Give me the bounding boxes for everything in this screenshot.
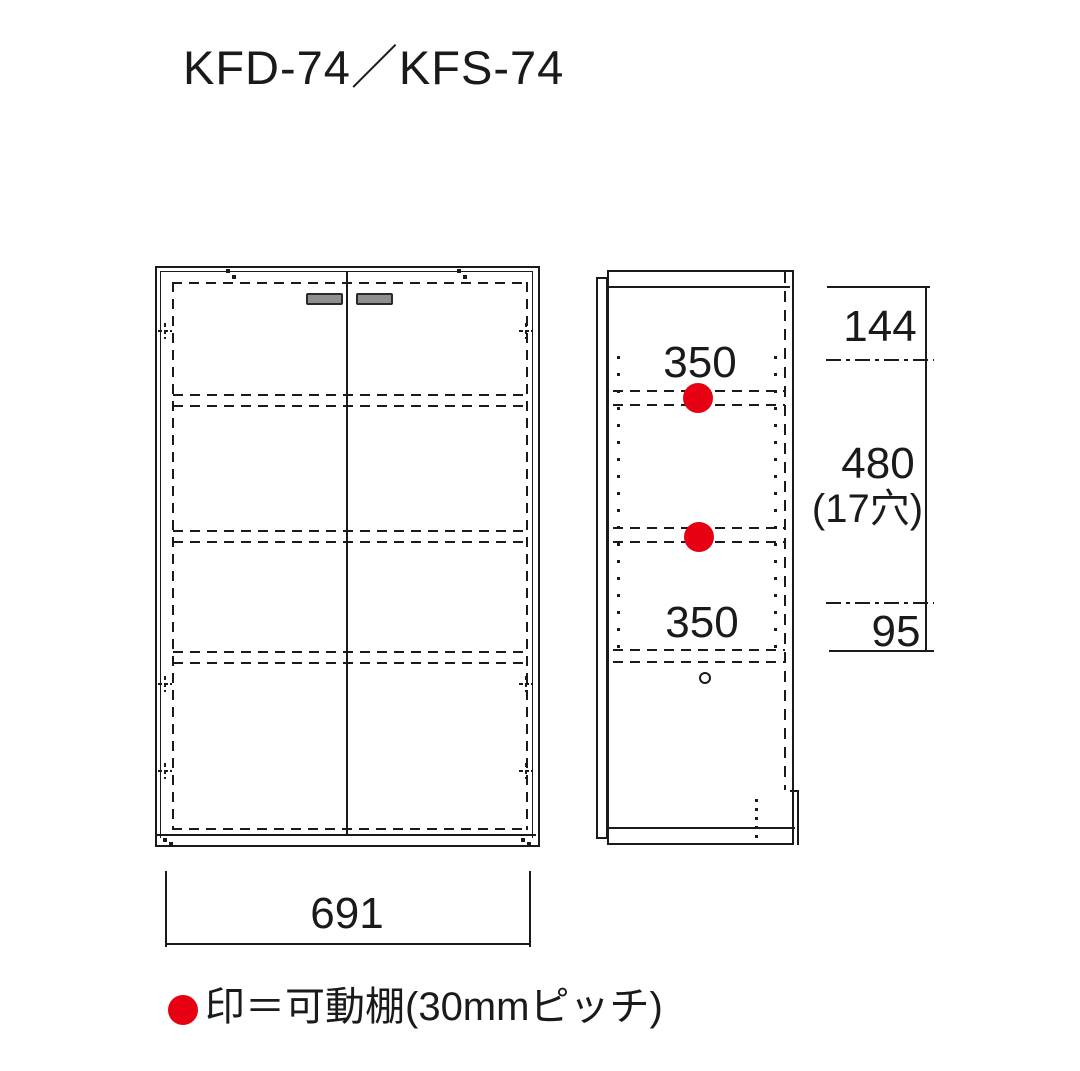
adjustable-shelf-dot [683, 383, 713, 413]
shelf-line [173, 651, 527, 653]
hinge-mark [519, 323, 533, 339]
dowel-dot [457, 269, 461, 273]
shelf-line [173, 530, 527, 532]
dim-dashdot-line [826, 359, 934, 361]
left-door-handle [306, 293, 343, 305]
hinge-mark [158, 323, 172, 339]
legend-label: 印＝可動棚(30mmピッチ) [205, 987, 663, 1027]
legend-adjustable-shelf-dot-icon [168, 995, 198, 1025]
dowel-dot [226, 269, 230, 273]
hole-count-label: (17穴) [795, 489, 940, 529]
cam-hole [699, 672, 711, 684]
shelf-line [173, 405, 527, 407]
top-height-label: 144 [832, 305, 928, 349]
lower-depth-label: 350 [627, 601, 777, 645]
carcass-hidden-outline [172, 282, 528, 830]
hinge-mark [158, 676, 172, 692]
hinge-mark [519, 676, 533, 692]
dim-line [827, 286, 930, 288]
shelf-line [173, 541, 527, 543]
upper-depth-label: 350 [625, 341, 775, 385]
dowel-dot [169, 842, 173, 846]
pin-hole-column [617, 356, 620, 656]
side-top-panel-line [609, 286, 790, 288]
dowel-dot [232, 275, 236, 279]
pin-hole-column [755, 799, 758, 841]
dowel-dot [163, 838, 167, 842]
back-base-step [790, 790, 799, 845]
shelf-line [173, 662, 527, 664]
hinge-mark [519, 763, 533, 779]
dowel-dot [463, 275, 467, 279]
middle-height-label: 480 [828, 442, 928, 486]
adjustable-shelf-dot [684, 522, 714, 552]
dowel-dot [527, 842, 531, 846]
shelf-line [173, 394, 527, 396]
dowel-dot [521, 838, 525, 842]
shelf-line [613, 661, 785, 663]
right-door-handle [356, 293, 393, 305]
width-dimension-label: 691 [257, 892, 437, 936]
cabinet-diagram: KFD-74／KFS-74 [0, 0, 1080, 1071]
shelf-line [613, 649, 785, 651]
back-panel-hidden-line [784, 272, 786, 790]
side-base-line [609, 827, 795, 829]
dim-line [165, 943, 531, 945]
dim-tick [529, 871, 531, 947]
model-title: KFD-74／KFS-74 [183, 44, 564, 91]
front-base-line [157, 834, 536, 836]
bottom-height-label: 95 [848, 610, 944, 654]
dim-tick [165, 871, 167, 947]
hinge-mark [158, 763, 172, 779]
dim-dashdot-line [826, 602, 934, 604]
